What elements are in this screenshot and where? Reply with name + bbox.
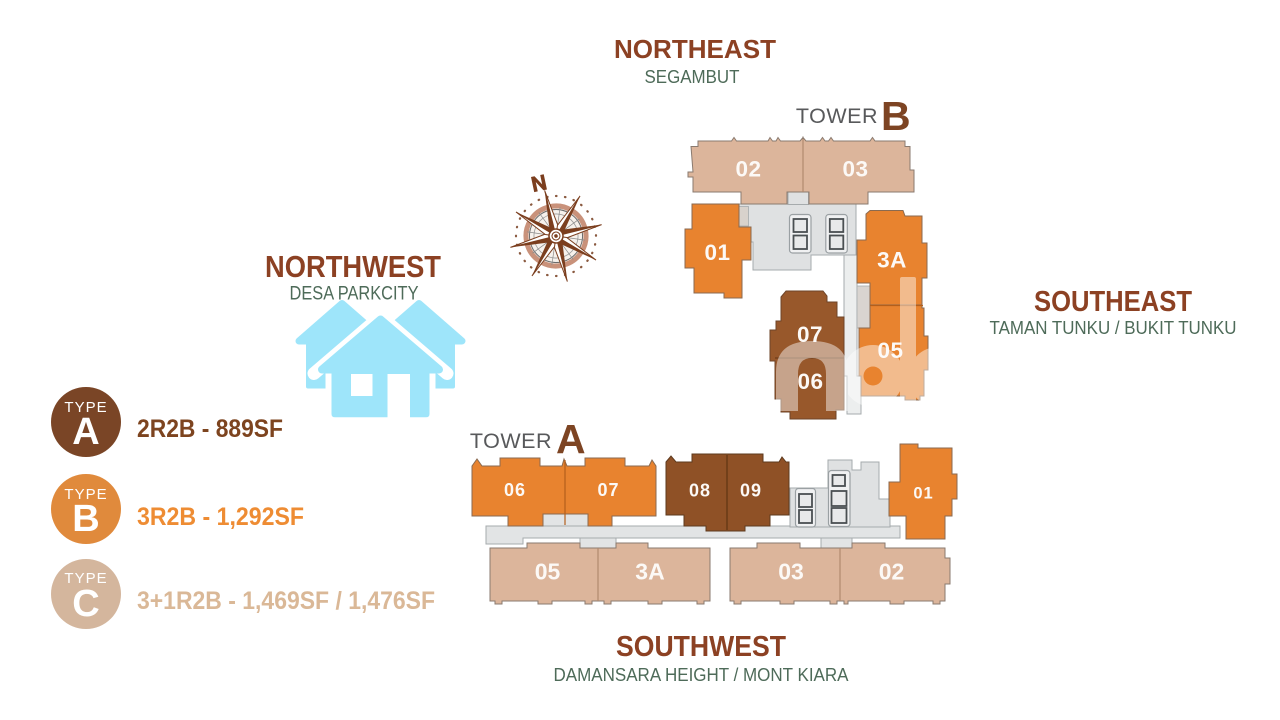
svg-text:06: 06 [504,480,526,500]
svg-text:SOUTHEAST: SOUTHEAST [1034,286,1192,318]
svg-text:2R2B - 889SF: 2R2B - 889SF [137,415,283,443]
svg-text:02: 02 [735,157,761,182]
svg-text:3+1R2B - 1,469SF / 1,476SF: 3+1R2B - 1,469SF / 1,476SF [137,587,435,615]
svg-text:A: A [556,416,586,462]
svg-text:DESA PARKCITY: DESA PARKCITY [290,283,419,305]
svg-text:SOUTHWEST: SOUTHWEST [616,631,786,663]
svg-text:NORTHEAST: NORTHEAST [614,34,776,64]
svg-text:TAMAN TUNKU / BUKIT TUNKU: TAMAN TUNKU / BUKIT TUNKU [990,318,1237,338]
svg-text:3A: 3A [877,248,907,273]
svg-text:01: 01 [913,485,933,503]
svg-text:TOWER: TOWER [470,429,552,453]
svg-text:NORTHWEST: NORTHWEST [265,249,441,284]
svg-text:05: 05 [535,559,561,585]
svg-text:06: 06 [797,369,823,394]
svg-text:07: 07 [597,480,619,500]
svg-text:09: 09 [740,481,762,501]
svg-text:01: 01 [704,240,730,265]
svg-text:B: B [72,498,99,540]
svg-text:3R2B - 1,292SF: 3R2B - 1,292SF [137,503,304,531]
svg-text:03: 03 [842,157,868,182]
svg-text:08: 08 [689,481,711,501]
svg-text:A: A [72,411,99,453]
svg-text:B: B [881,93,911,139]
svg-text:C: C [72,583,99,625]
svg-text:03: 03 [778,559,804,585]
svg-text:TOWER: TOWER [796,104,878,128]
svg-text:3A: 3A [635,559,664,585]
svg-text:SEGAMBUT: SEGAMBUT [645,67,740,87]
svg-text:DAMANSARA HEIGHT / MONT KIARA: DAMANSARA HEIGHT / MONT KIARA [554,664,850,685]
svg-text:02: 02 [879,559,905,585]
